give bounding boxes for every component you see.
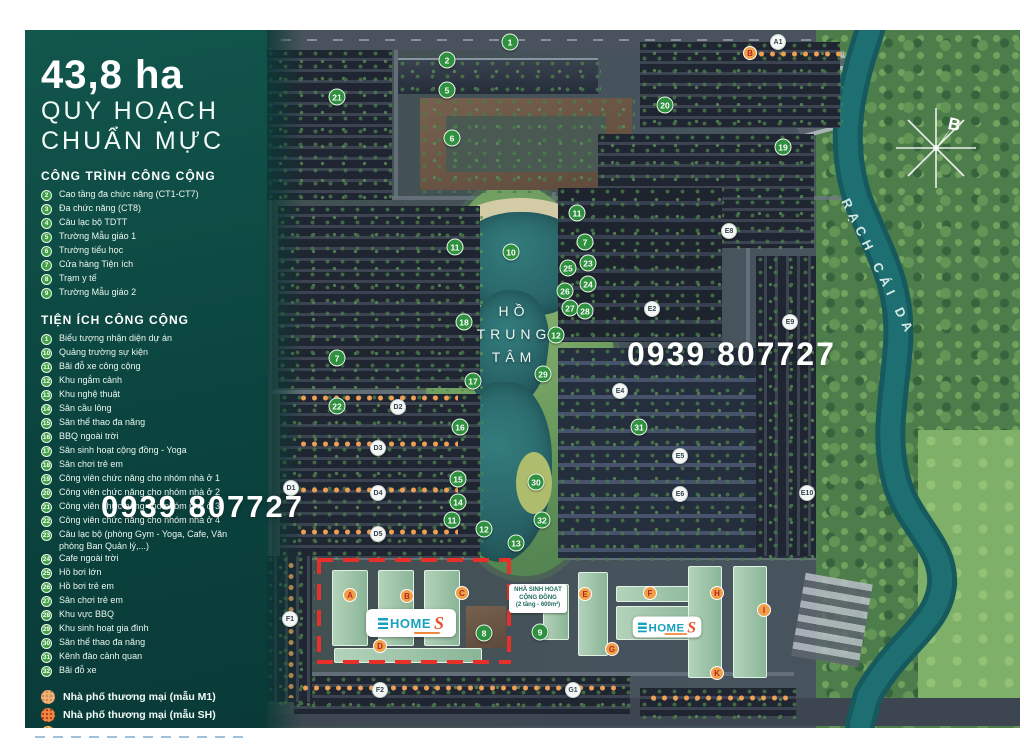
logo-e-icon — [378, 618, 388, 629]
legend-item-label: BBQ ngoài trời — [59, 431, 118, 443]
poster-title-line1: QUY HOẠCH — [41, 96, 253, 126]
legend-number-badge: 26 — [41, 582, 52, 593]
community-house-line: (2 tầng - 600m²) — [510, 602, 566, 610]
legend-item-label: Bãi đỗ xe công cộng — [59, 361, 141, 373]
legend-item-label: Câu lạc bộ (phòng Gym - Yoga, Cafe, Văn … — [59, 529, 253, 552]
apartment-slab — [332, 570, 368, 646]
legend-item-label: Hồ bơi lớn — [59, 567, 101, 579]
amenity-item-12: 12Khu ngắm cảnh — [41, 375, 253, 388]
shophouse-dots — [298, 440, 458, 448]
shophouse-row — [294, 676, 630, 714]
public-work-item-5: 5Trường Mẫu giáo 1 — [41, 231, 253, 244]
legend-number-badge: 6 — [41, 246, 52, 257]
amenity-item-11: 11Bãi đỗ xe công cộng — [41, 361, 253, 374]
margin-dash-line — [35, 736, 250, 738]
apartment-slab — [733, 566, 767, 678]
legend-number-badge: 2 — [41, 190, 52, 201]
legend-number-badge: 23 — [41, 530, 52, 541]
legend-item-label: Công viên chức năng cho nhóm nhà ở 1 — [59, 473, 220, 485]
legend-item-label: Sân cầu lông — [59, 403, 112, 415]
legend-number-badge: 21 — [41, 502, 52, 513]
legend-item-label: Bãi đỗ xe — [59, 665, 97, 677]
legend-number-badge: 32 — [41, 666, 52, 677]
amenity-item-27: 27Sân chơi trẻ em — [41, 595, 253, 608]
amenity-item-17: 17Sân sinh hoạt cộng đồng - Yoga — [41, 445, 253, 458]
legend-item-label: Trạm y tế — [59, 273, 97, 285]
panel-fade — [267, 30, 303, 728]
logo-e-icon — [638, 622, 647, 632]
phone-watermark: 0939 807727 — [627, 336, 836, 373]
public-work-item-9: 9Trường Mẫu giáo 2 — [41, 287, 253, 300]
public-work-item-4: 4Câu lạc bộ TDTT — [41, 217, 253, 230]
logo-word: HOME — [390, 616, 431, 631]
legend-item-label: Khu sinh hoạt gia đình — [59, 623, 149, 635]
legend-number-badge: 5 — [41, 232, 52, 243]
lake-label-line: HỒ — [466, 300, 562, 323]
ehome-s-logo: HOME S — [633, 616, 702, 637]
lake-label: HỒ TRUNG TÂM — [466, 300, 562, 369]
shophouse-dots — [298, 528, 458, 536]
legend-number-badge: 14 — [41, 404, 52, 415]
legend-item-label: Quảng trường sự kiện — [59, 347, 148, 359]
amenity-item-18: 18Sân chơi trẻ em — [41, 459, 253, 472]
legend-item-label: Sân chơi trẻ em — [59, 595, 123, 607]
shophouse-dots — [756, 50, 846, 58]
amenity-item-10: 10Quảng trường sự kiện — [41, 347, 253, 360]
project-area: 43,8 ha — [41, 54, 253, 96]
legend-number-badge: 7 — [41, 260, 52, 271]
legend-number-badge: 9 — [41, 288, 52, 299]
highlight-box-border — [317, 558, 321, 664]
legend-item-label: Sân thể thao đa năng — [59, 417, 145, 429]
shophouse-dots — [648, 694, 788, 702]
legend-item-label: Hồ bơi trẻ em — [59, 581, 114, 593]
amenities-heading: TIỆN ÍCH CÔNG CỘNG — [41, 313, 253, 327]
villa-district — [558, 188, 722, 342]
legend-number-badge: 11 — [41, 362, 52, 373]
legend-item-label: Khu nghệ thuật — [59, 389, 120, 401]
phone-watermark: 0939 807727 — [101, 489, 304, 525]
ct-towers — [398, 58, 598, 94]
legend-number-badge: 4 — [41, 218, 52, 229]
logo-s: S — [434, 613, 444, 634]
amenity-item-25: 25Hồ bơi lớn — [41, 567, 253, 580]
lakeside-lawn — [516, 452, 552, 514]
legend-number-badge: 20 — [41, 488, 52, 499]
legend-item-label: Trường Mẫu giáo 1 — [59, 231, 136, 243]
highlight-box-border — [317, 558, 511, 562]
frame-margin — [0, 0, 1024, 30]
public-work-item-8: 8Trạm y tế — [41, 273, 253, 286]
shophouse-dots — [298, 394, 458, 402]
lake-label-line: TÂM — [466, 346, 562, 369]
legend-panel: 43,8 ha QUY HOẠCH CHUẨN MỰC CÔNG TRÌNH C… — [25, 30, 267, 728]
legend-item-label: Sân thể thao đa năng — [59, 637, 145, 649]
legend-item-label: Cafe ngoài trời — [59, 553, 118, 565]
legend-number-badge: 18 — [41, 460, 52, 471]
masterplan-poster: HỒ TRUNG TÂM RẠCH CÁI DA B NHÀ SINH HOẠT… — [0, 0, 1024, 745]
legend-item-label: Trường Mẫu giáo 2 — [59, 287, 136, 299]
logo-s: S — [687, 618, 696, 636]
community-house-line: CỘNG ĐỒNG — [510, 595, 566, 603]
amenity-item-29: 29Khu sinh hoạt gia đình — [41, 623, 253, 636]
housing-type-label: Nhà phố thương mại (mẫu SH) — [63, 709, 216, 721]
community-house-label: NHÀ SINH HOẠT CỘNG ĐỒNG (2 tầng - 600m²) — [509, 584, 567, 613]
legend-item-label: Cửa hàng Tiện ích — [59, 259, 133, 271]
legend-number-badge: 25 — [41, 568, 52, 579]
legend-number-badge: 24 — [41, 554, 52, 565]
amenity-item-24: 24Cafe ngoài trời — [41, 553, 253, 566]
housing-swatch-m1 — [41, 690, 55, 704]
legend-number-badge: 27 — [41, 596, 52, 607]
legend-item-label: Câu lạc bộ TDTT — [59, 217, 127, 229]
shophouse-dots — [300, 684, 620, 692]
amenity-item-23: 23Câu lạc bộ (phòng Gym - Yoga, Cafe, Vă… — [41, 529, 253, 552]
legend-item-label: Cao tầng đa chức năng (CT1-CT7) — [59, 189, 199, 201]
legend-number-badge: 30 — [41, 638, 52, 649]
legend-number-badge: 28 — [41, 610, 52, 621]
district-block — [278, 206, 480, 388]
shophouse-row — [640, 688, 796, 716]
legend-item-label: Trường tiểu học — [59, 245, 123, 257]
legend-number-badge: 15 — [41, 418, 52, 429]
public-work-item-6: 6Trường tiểu học — [41, 245, 253, 258]
legend-number-badge: 17 — [41, 446, 52, 457]
public-work-item-2: 2Cao tầng đa chức năng (CT1-CT7) — [41, 189, 253, 202]
poster-title-line2: CHUẨN MỰC — [41, 126, 253, 156]
legend-number-badge: 19 — [41, 474, 52, 485]
amenity-item-19: 19Công viên chức năng cho nhóm nhà ở 1 — [41, 473, 253, 486]
community-house-line: NHÀ SINH HOẠT — [510, 587, 566, 595]
legend-item-label: Khu ngắm cảnh — [59, 375, 122, 387]
legend-number-badge: 10 — [41, 348, 52, 359]
legend-number-badge: 16 — [41, 432, 52, 443]
public-works-list: 2Cao tầng đa chức năng (CT1-CT7)3Đa chức… — [41, 189, 253, 300]
public-work-item-3: 3Đa chức năng (CT8) — [41, 203, 253, 216]
logo-tagline — [664, 633, 687, 635]
clinic-building — [466, 606, 506, 648]
frame-margin — [1020, 0, 1024, 745]
legend-number-badge: 3 — [41, 204, 52, 215]
amenity-item-28: 28Khu vực BBQ — [41, 609, 253, 622]
legend-number-badge: 1 — [41, 334, 52, 345]
lake-label-line: TRUNG — [466, 323, 562, 346]
legend-number-badge: 8 — [41, 274, 52, 285]
amenity-item-31: 31Kênh đào cảnh quan — [41, 651, 253, 664]
housing-swatch-sh — [41, 708, 55, 722]
amenity-item-30: 30Sân thể thao đa năng — [41, 637, 253, 650]
amenity-item-26: 26Hồ bơi trẻ em — [41, 581, 253, 594]
amenity-item-15: 15Sân thể thao đa năng — [41, 417, 253, 430]
legend-item-label: Đa chức năng (CT8) — [59, 203, 141, 215]
amenity-item-14: 14Sân cầu lông — [41, 403, 253, 416]
legend-number-badge: 22 — [41, 516, 52, 527]
amenity-item-13: 13Khu nghệ thuật — [41, 389, 253, 402]
legend-item-label: Sân sinh hoạt cộng đồng - Yoga — [59, 445, 187, 457]
legend-number-badge: 13 — [41, 390, 52, 401]
legend-item-label: Kênh đào cảnh quan — [59, 651, 142, 663]
housing-type-label: Nhà phố thương mại (mẫu M1) — [63, 691, 216, 703]
frame-margin — [0, 0, 25, 745]
legend-number-badge: 31 — [41, 652, 52, 663]
housing-type-sh: Nhà phố thương mại (mẫu SH) — [41, 708, 253, 722]
legend-item-label: Biểu tượng nhận diện dự án — [59, 333, 172, 345]
shophouse-dots — [298, 486, 458, 494]
amenity-item-32: 32Bãi đỗ xe — [41, 665, 253, 678]
legend-item-label: Khu vực BBQ — [59, 609, 114, 621]
legend-item-label: Sân chơi trẻ em — [59, 459, 123, 471]
apartment-slab — [578, 572, 608, 656]
ehome-s-logo: HOME S — [366, 609, 456, 637]
amenity-item-1: 1Biểu tượng nhận diện dự án — [41, 333, 253, 346]
district-block — [756, 256, 816, 556]
highlight-box-border — [317, 660, 511, 664]
logo-tagline — [414, 632, 440, 634]
legend-number-badge: 29 — [41, 624, 52, 635]
logo-word: HOME — [649, 620, 685, 633]
housing-type-m1: Nhà phố thương mại (mẫu M1) — [41, 690, 253, 704]
compass-icon — [893, 105, 979, 191]
amenity-item-16: 16BBQ ngoài trời — [41, 431, 253, 444]
public-work-item-7: 7Cửa hàng Tiện ích — [41, 259, 253, 272]
legend-number-badge: 12 — [41, 376, 52, 387]
public-works-heading: CÔNG TRÌNH CÔNG CỘNG — [41, 169, 253, 183]
